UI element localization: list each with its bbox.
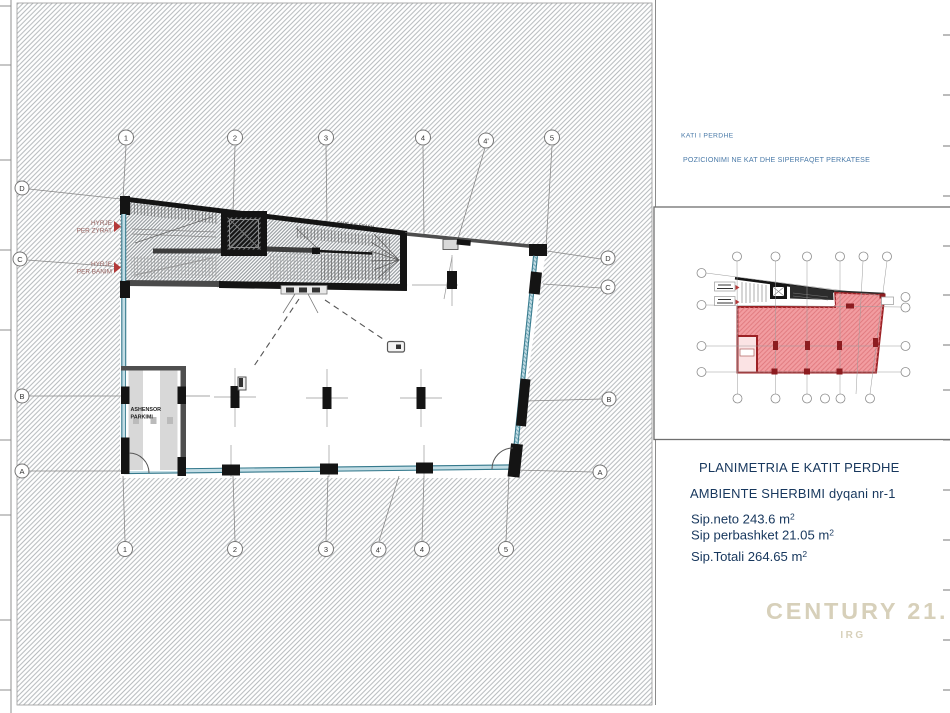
svg-text:B: B	[606, 395, 611, 404]
svg-text:3: 3	[324, 134, 328, 143]
svg-text:IRG: IRG	[840, 630, 865, 641]
svg-text:PER BANIM: PER BANIM	[77, 269, 112, 276]
svg-text:A: A	[597, 468, 602, 477]
svg-text:Sip.neto 243.6 m2: Sip.neto 243.6 m2	[691, 512, 795, 527]
svg-text:POZICIONIMI NE KAT DHE SIPERFA: POZICIONIMI NE KAT DHE SIPERFAQET PERKAT…	[683, 156, 870, 164]
svg-text:CENTURY 21.: CENTURY 21.	[766, 598, 948, 624]
svg-text:2: 2	[233, 134, 237, 143]
svg-text:PARKIMI: PARKIMI	[131, 415, 154, 421]
svg-text:A: A	[19, 467, 24, 476]
svg-text:D: D	[605, 254, 611, 263]
svg-text:Sip.Totali 264.65 m2: Sip.Totali 264.65 m2	[691, 549, 807, 564]
svg-text:Sip perbashket 21.05 m2: Sip perbashket 21.05 m2	[691, 528, 834, 543]
svg-text:B: B	[19, 392, 24, 401]
svg-text:4: 4	[420, 545, 424, 554]
svg-text:PER ZYRAT: PER ZYRAT	[77, 228, 112, 235]
svg-text:ASHENSOR: ASHENSOR	[131, 407, 162, 413]
svg-text:AMBIENTE SHERBIMI dyqani nr-1: AMBIENTE SHERBIMI dyqani nr-1	[690, 486, 896, 501]
svg-text:4: 4	[421, 134, 425, 143]
svg-text:C: C	[17, 255, 23, 264]
svg-text:C: C	[605, 283, 611, 292]
svg-text:1: 1	[123, 545, 127, 554]
svg-text:5: 5	[504, 545, 508, 554]
svg-text:HYRJE: HYRJE	[91, 261, 112, 268]
svg-text:KATI I PERDHE: KATI I PERDHE	[681, 133, 734, 140]
svg-text:5: 5	[550, 134, 554, 143]
svg-text:HYRJE: HYRJE	[91, 220, 112, 227]
svg-text:D: D	[19, 184, 25, 193]
svg-text:4': 4'	[376, 546, 382, 555]
svg-text:4': 4'	[483, 137, 489, 146]
svg-text:PLANIMETRIA E KATIT PERDHE: PLANIMETRIA E KATIT PERDHE	[699, 460, 900, 475]
svg-text:3: 3	[324, 545, 328, 554]
svg-text:2: 2	[233, 545, 237, 554]
svg-text:1: 1	[124, 134, 128, 143]
